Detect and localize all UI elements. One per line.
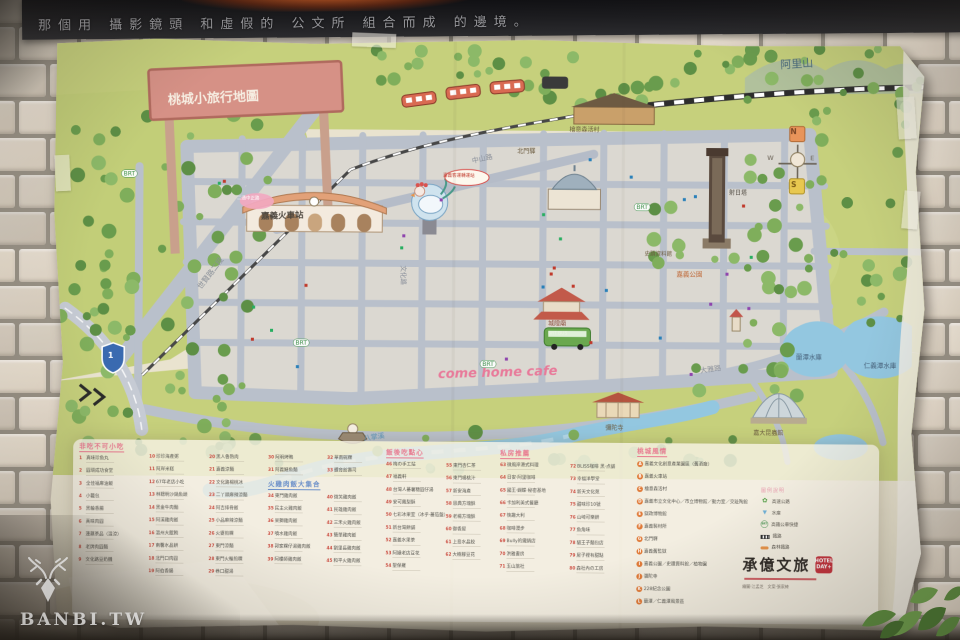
legend-item-number: 69 bbox=[500, 539, 507, 544]
tree-icon bbox=[816, 175, 826, 185]
legend-item-name: 東門火輪煎粿 bbox=[215, 556, 242, 561]
brick bbox=[0, 471, 15, 504]
brick bbox=[0, 249, 15, 282]
legend-item-address-line bbox=[392, 570, 420, 571]
legend-item-name: 呆獅雞肉飯 bbox=[275, 519, 298, 524]
tree-icon bbox=[896, 267, 908, 279]
tree-icon bbox=[80, 337, 95, 352]
legend-item-number: 66 bbox=[500, 501, 507, 506]
forest-rail-icon bbox=[761, 546, 769, 549]
tree-icon bbox=[83, 216, 94, 227]
tree-icon bbox=[212, 231, 225, 244]
legend-item-address-line bbox=[507, 495, 535, 496]
tree-icon bbox=[865, 49, 875, 59]
brick bbox=[0, 397, 15, 430]
legend-item-number: 50 bbox=[386, 513, 393, 518]
legend-item-name: 東門涼麵 bbox=[216, 544, 234, 549]
tree-icon bbox=[670, 78, 680, 88]
spot-number-dot bbox=[550, 272, 553, 275]
legend-item: K228紀念公園 bbox=[636, 586, 749, 593]
legend-item-address-line bbox=[216, 461, 244, 462]
legend-item-letter: A bbox=[637, 461, 643, 467]
map-paper: 非吃不可小吃1真味珍魚丸2圓環成功食堂3全佳福麻油飯4小籠包5黑輪香腸6真味肉圓… bbox=[48, 35, 928, 637]
brick bbox=[949, 397, 960, 430]
legend-item-number: 27 bbox=[209, 544, 216, 549]
legend-item-name: 簡單雞肉飯 bbox=[334, 533, 357, 538]
legend-item-name: 嘉義文化創意產業園區（舊酒廠） bbox=[645, 461, 713, 466]
tree-icon bbox=[647, 232, 662, 247]
legend-item-number: 44 bbox=[326, 546, 333, 551]
tree-icon bbox=[732, 55, 745, 68]
legend-item-number: 28 bbox=[208, 557, 215, 562]
legend-item-number: 7 bbox=[79, 532, 86, 537]
legend-item-name: 福義軒 bbox=[393, 474, 407, 479]
tree-icon bbox=[240, 152, 253, 165]
legend-item-address-line bbox=[155, 550, 183, 551]
legend-item-name: 噴水雞肉飯 bbox=[275, 531, 298, 536]
legend-item-address-line bbox=[156, 486, 184, 487]
tree-icon bbox=[107, 406, 119, 418]
legend-item: 4小籠包 bbox=[79, 494, 145, 501]
legend-item: 31阿義鱔魚麵 bbox=[268, 468, 334, 475]
legend-item-address-line bbox=[507, 520, 535, 521]
map-key-row: ▼水庫 bbox=[761, 509, 841, 517]
legend-item-number: 3 bbox=[79, 481, 86, 486]
legend-item-address-line bbox=[86, 475, 114, 476]
legend-column: 私房推薦63微風岸港式料理64日安·阿里咖啡65國王·蝴蝶·秘密基地66卡加利美… bbox=[499, 450, 566, 578]
legend-item: 71玉山旅社 bbox=[499, 565, 565, 572]
legend-item: 20黑人魯熟肉 bbox=[209, 455, 275, 462]
legend-item-address-line bbox=[156, 512, 184, 513]
legend-item-name: 蓮藕茶品（溫涼） bbox=[86, 532, 122, 537]
legend-item-address-line bbox=[577, 522, 605, 523]
legend-item: 73幸福洋學堂 bbox=[570, 477, 636, 484]
legend-item-address-line bbox=[577, 534, 605, 535]
legend-item-number: 68 bbox=[500, 527, 507, 532]
legend-item-address-line bbox=[392, 557, 420, 558]
legend-item: 25小品麻辣涼麵 bbox=[209, 519, 275, 526]
legend-item-name: 阿義鱔魚麵 bbox=[275, 468, 298, 473]
photo-of-map-on-brick-wall: 那個用 攝影鏡頭 和虛假的 公文所 組合而成 的邊境。 bbox=[0, 0, 960, 640]
legend-item-number: 73 bbox=[570, 477, 577, 482]
rail-icon bbox=[761, 535, 770, 539]
legend-item: 53阿娥老店豆花 bbox=[385, 551, 451, 558]
spot-number-dot bbox=[683, 198, 686, 201]
tape-piece bbox=[352, 32, 397, 48]
legend-item: 24阿吉排骨飯 bbox=[209, 506, 275, 513]
brick bbox=[0, 508, 46, 541]
tree-icon bbox=[774, 364, 788, 378]
legend-section-header: 火雞肉飯大集合 bbox=[268, 481, 321, 490]
map-key-row: 森林鐵路 bbox=[761, 543, 841, 550]
legend-item-name: 全佳福麻油飯 bbox=[86, 481, 113, 486]
tree-icon bbox=[567, 51, 579, 63]
tree-icon bbox=[774, 284, 784, 294]
legend-item: 69Bully的鐵鍋店 bbox=[500, 539, 566, 546]
legend-item-address-line bbox=[216, 525, 244, 526]
legend-item-address-line bbox=[334, 540, 362, 541]
tree-icon bbox=[857, 296, 866, 305]
tree-icon bbox=[801, 74, 813, 86]
legend-item-number: 67 bbox=[500, 514, 507, 519]
spot-number-dot bbox=[252, 306, 255, 309]
legend-item-letter: L bbox=[636, 598, 642, 604]
tree-icon bbox=[874, 45, 882, 53]
tree-icon bbox=[757, 174, 767, 184]
legend-item-number: 36 bbox=[268, 519, 275, 524]
tree-icon bbox=[797, 281, 812, 296]
legend-item: 6真味肉圓 bbox=[79, 520, 145, 527]
tree-icon bbox=[840, 89, 847, 96]
legend-item-name: 筷趣大利 bbox=[507, 513, 525, 518]
tree-icon bbox=[823, 107, 831, 115]
legend-item-letter: E bbox=[637, 511, 643, 517]
tree-icon bbox=[80, 406, 91, 417]
legend-item-number: 47 bbox=[386, 475, 393, 480]
brick bbox=[0, 101, 15, 134]
tree-icon bbox=[870, 274, 883, 287]
tree-icon bbox=[376, 75, 387, 86]
legend-item-name: 嘉義涼麵 bbox=[216, 467, 234, 472]
legend-item-name: 阿岸米糕 bbox=[156, 467, 174, 472]
legend-item-name: 黑金牛肉麵 bbox=[156, 505, 179, 510]
legend-item-name: 郭家粿仔湯雞肉飯 bbox=[275, 544, 311, 549]
legend-item: B嘉義火車站 bbox=[637, 473, 750, 480]
tree-icon bbox=[804, 254, 813, 263]
legend-item-number: 79 bbox=[569, 554, 576, 559]
spot-number-dot bbox=[542, 285, 545, 288]
legend-item: 30阿明烤鴨 bbox=[268, 455, 334, 462]
tree-icon bbox=[684, 62, 697, 75]
legend-item-address-line bbox=[507, 482, 535, 483]
spot-number-dot bbox=[296, 365, 299, 368]
legend-item: 16溫州大餛飩 bbox=[149, 531, 215, 538]
legend-item-number: 43 bbox=[327, 533, 334, 538]
tree-icon bbox=[377, 51, 387, 61]
legend-item-address-line bbox=[215, 563, 243, 564]
legend-item-letter: F bbox=[637, 523, 643, 529]
legend-item-address-line bbox=[333, 552, 361, 553]
legend-item-number: 15 bbox=[149, 518, 156, 523]
tree-icon bbox=[219, 292, 228, 301]
legend-item-name: 火婆煎粿 bbox=[216, 531, 234, 536]
legend-item-name: 彌陀寺 bbox=[644, 574, 658, 579]
tree-icon bbox=[664, 201, 677, 214]
legend-section-header: 私房推薦 bbox=[500, 450, 530, 459]
legend-item-name: 台灣人蕃薯糖圓仔湯 bbox=[393, 487, 434, 492]
legend-item-name: 文化路楊桃冰 bbox=[216, 480, 243, 485]
legend-item-number: 65 bbox=[500, 488, 507, 493]
brick bbox=[0, 286, 46, 319]
legend-item-number: 58 bbox=[446, 502, 453, 507]
legend-item-address-line bbox=[576, 560, 604, 561]
watermark-text: BANBI.TW bbox=[20, 610, 147, 630]
tree-icon bbox=[263, 176, 272, 185]
legend-item-address-line bbox=[216, 499, 244, 500]
legend-item-number: 6 bbox=[79, 520, 86, 525]
legend-item-name: 聖保羅 bbox=[392, 563, 406, 568]
brick bbox=[0, 360, 46, 393]
brt-icon: BRT bbox=[761, 520, 769, 528]
tree-icon bbox=[218, 344, 231, 357]
tree-icon bbox=[207, 253, 221, 267]
legend-item: 18北門口肉圓 bbox=[148, 556, 214, 563]
legend-item-name: 貓王子麵包店 bbox=[577, 540, 604, 545]
tree-icon bbox=[738, 364, 748, 374]
tree-icon bbox=[161, 317, 175, 331]
spot-number-dot bbox=[251, 338, 254, 341]
legend-item-name: 阿伯香腸 bbox=[155, 569, 173, 574]
brick bbox=[0, 619, 15, 640]
tree-icon bbox=[108, 321, 122, 335]
legend-item-name: 卡加利美式餐廳 bbox=[507, 501, 539, 506]
legend-item-address-line bbox=[86, 526, 114, 527]
legend-item-address-line bbox=[393, 481, 421, 482]
legend-item: E獄政博物館 bbox=[637, 511, 750, 518]
tree-icon bbox=[110, 126, 121, 137]
legend-item-name: 老楊方塊酥 bbox=[453, 514, 476, 519]
brand-slogan-line bbox=[744, 578, 816, 581]
legend-item-letter: K bbox=[636, 586, 642, 592]
brick bbox=[0, 64, 46, 97]
legend-item-name: 圓環成功食堂 bbox=[86, 468, 113, 473]
legend-item-number: 80 bbox=[569, 566, 576, 571]
tree-icon bbox=[853, 68, 864, 79]
legend-item-number: 2 bbox=[79, 469, 86, 474]
tree-icon bbox=[158, 245, 166, 253]
banner-text: 那個用 攝影鏡頭 和虛假的 公文所 組合而成 的邊境。 bbox=[38, 11, 534, 34]
legend-item-number: 8 bbox=[78, 545, 85, 550]
legend-item-name: 小籠包 bbox=[86, 494, 100, 499]
legend-item-address-line bbox=[156, 461, 184, 462]
tree-icon bbox=[722, 61, 729, 68]
legend-item-name: 真味珍魚丸 bbox=[86, 456, 109, 461]
legend-item: 45和平火雞肉飯 bbox=[326, 559, 392, 566]
plant-leaves bbox=[852, 566, 960, 640]
map-key-label: 水庫 bbox=[772, 509, 781, 516]
legend-item: 75甜味珍10號 bbox=[570, 503, 636, 510]
legend-item-number: 71 bbox=[499, 565, 506, 570]
brick bbox=[949, 323, 960, 356]
legend-item-address-line bbox=[393, 532, 421, 533]
tree-icon bbox=[404, 62, 412, 70]
legend-item: 65國王·蝴蝶·秘密基地 bbox=[500, 488, 566, 495]
legend-item-address-line bbox=[155, 563, 183, 564]
legend-item-name: 獄政博物館 bbox=[644, 511, 667, 516]
illustrated-map-poster: 非吃不可小吃1真味珍魚丸2圓環成功食堂3全佳福麻油飯4小籠包5黑輪香腸6真味肉圓… bbox=[48, 35, 928, 637]
legend-item-name: 阿溪雞肉飯 bbox=[156, 518, 179, 523]
legend-item-number: 32 bbox=[327, 456, 334, 461]
legend-item-address-line bbox=[215, 576, 243, 577]
legend-item-number: 1 bbox=[79, 456, 86, 461]
tree-icon bbox=[105, 249, 114, 258]
legend-item-name: 玉山旅社 bbox=[506, 564, 524, 569]
legend-item-name: 新天文化苑 bbox=[577, 490, 600, 495]
legend-column: 桃城風情A嘉義文化創意產業園區（舊酒廠）B嘉義火車站C檜意森活村D嘉義市立文化中… bbox=[636, 448, 750, 612]
tree-icon bbox=[186, 342, 199, 355]
legend-item-name: 嘉義公園／史蹟資料館／植物園 bbox=[644, 561, 707, 566]
legend-item-name: 檜意森活村 bbox=[644, 486, 667, 491]
legend-item: D嘉義市立文化中心／市立博物館／動力室／交趾陶館 bbox=[637, 498, 750, 505]
legend-item-name: 微笑雞肉飯 bbox=[334, 495, 357, 500]
tree-icon bbox=[648, 203, 661, 216]
tree-icon bbox=[208, 184, 222, 198]
spot-number-dot bbox=[725, 273, 728, 276]
brick bbox=[949, 101, 960, 134]
legend-item: F嘉義製材所 bbox=[637, 523, 750, 530]
legend-item-name: 新台灣餅舖 bbox=[393, 525, 416, 530]
legend-item-name: 嘉義舊監獄 bbox=[644, 549, 667, 554]
legend-item-name: 安可鳳梨酥 bbox=[393, 500, 416, 505]
legend-item: 17南馨水晶餅 bbox=[148, 544, 214, 551]
tree-icon bbox=[125, 279, 140, 294]
tree-icon bbox=[878, 293, 885, 300]
deer-logo-icon bbox=[20, 556, 80, 604]
tree-icon bbox=[492, 57, 505, 70]
brick bbox=[949, 471, 960, 504]
legend-item-letter: D bbox=[637, 498, 643, 504]
tree-icon bbox=[70, 168, 85, 183]
tree-icon bbox=[217, 402, 227, 412]
tree-icon bbox=[765, 72, 779, 86]
legend-item-name: 上島水晶餃 bbox=[453, 540, 476, 545]
tree-icon bbox=[75, 260, 86, 271]
tree-icon bbox=[456, 71, 464, 79]
map-key-row: ✿高速公路 bbox=[761, 497, 841, 505]
legend-column: 30阿明烤鴨31阿義鱔魚麵火雞肉飯大集合34東門雞肉飯35民主火雞肉飯36呆獅雞… bbox=[267, 455, 334, 570]
legend-section-header: 非吃不可小吃 bbox=[79, 443, 124, 452]
legend-item-address-line bbox=[216, 538, 244, 539]
legend-item-address-line bbox=[215, 550, 243, 551]
tree-icon bbox=[165, 383, 175, 393]
tree-icon bbox=[91, 155, 106, 170]
legend-item-address-line bbox=[156, 474, 184, 475]
legend-item-address-line bbox=[275, 513, 303, 514]
tree-icon bbox=[68, 283, 80, 295]
brick bbox=[0, 175, 15, 208]
legend-item-number: 78 bbox=[570, 541, 577, 546]
tree-icon bbox=[474, 70, 481, 77]
legend-item: 64日安·阿里咖啡 bbox=[500, 476, 566, 483]
tree-icon bbox=[520, 56, 532, 68]
tree-icon bbox=[728, 435, 737, 444]
tree-icon bbox=[238, 382, 245, 389]
tree-icon bbox=[53, 309, 67, 323]
legend-item-number: 10 bbox=[149, 455, 156, 460]
legend-item-number: 14 bbox=[149, 506, 156, 511]
legend-item: 10珍珍海產粥 bbox=[149, 455, 215, 462]
legend-item-name: 日安·阿里咖啡 bbox=[507, 475, 535, 480]
legend-item-name: 北門驛 bbox=[644, 536, 658, 541]
legend-item-address-line bbox=[86, 513, 114, 514]
tree-icon bbox=[197, 419, 212, 434]
tree-icon bbox=[796, 204, 803, 211]
legend-item-name: 東門雞肉飯 bbox=[275, 493, 298, 498]
tree-icon bbox=[123, 407, 134, 418]
spot-number-dot bbox=[742, 205, 745, 208]
tree-icon bbox=[225, 267, 239, 281]
legend-item-address-line bbox=[86, 539, 114, 540]
legend-item-number: 4 bbox=[79, 494, 86, 499]
legend-item-number: 21 bbox=[209, 468, 216, 473]
legend-item-name: 咖啡漫步 bbox=[507, 526, 525, 531]
leaf-icon bbox=[862, 587, 960, 639]
brick bbox=[0, 323, 15, 356]
tree-icon bbox=[181, 296, 194, 309]
legend-item-address-line bbox=[393, 519, 421, 520]
tree-icon bbox=[866, 318, 875, 327]
tree-icon bbox=[814, 43, 826, 55]
highway-1-shield bbox=[102, 343, 124, 373]
legend-item: 48台灣人蕃薯糖圓仔湯 bbox=[386, 488, 452, 495]
legend-item-number: 29 bbox=[208, 570, 215, 575]
tree-icon bbox=[485, 67, 493, 75]
legend-item: 36呆獅雞肉飯 bbox=[268, 519, 334, 526]
legend-item-address-line bbox=[506, 558, 534, 559]
legend-item-name: 67年老店小吃 bbox=[156, 480, 184, 485]
legend-item-letter: B bbox=[637, 473, 643, 479]
legend-item-number: 59 bbox=[446, 515, 453, 520]
legend-item-number: 49 bbox=[386, 500, 393, 505]
tree-icon bbox=[415, 45, 428, 58]
legend-item-number: 38 bbox=[268, 545, 275, 550]
tree-icon bbox=[676, 251, 684, 259]
tree-icon bbox=[175, 371, 185, 381]
tree-icon bbox=[411, 58, 423, 70]
legend-item: A嘉義文化創意產業園區（舊酒廠） bbox=[637, 461, 750, 468]
legend-item-number: 39 bbox=[267, 557, 274, 562]
legend-item-address-line bbox=[452, 559, 480, 560]
brick bbox=[949, 175, 960, 208]
tree-icon bbox=[631, 81, 645, 95]
legend-item-number: 35 bbox=[268, 506, 275, 511]
legend-item-address-line bbox=[453, 508, 481, 509]
map-key-row: BRT高鐵公車快捷 bbox=[761, 520, 841, 528]
legend-item-address-line bbox=[86, 488, 114, 489]
tree-icon bbox=[747, 228, 762, 243]
spot-number-dot bbox=[304, 284, 307, 287]
legend-item: 22文化路楊桃冰 bbox=[209, 480, 275, 487]
spot-number-dot bbox=[553, 266, 556, 269]
reservoir-icon: ▼ bbox=[761, 509, 769, 516]
tree-icon bbox=[93, 133, 105, 145]
spot-number-dot bbox=[559, 237, 562, 240]
legend-item-letter: C bbox=[637, 486, 643, 492]
legend-item-address-line bbox=[216, 474, 244, 475]
map-key-label: 森林鐵路 bbox=[772, 543, 790, 550]
legend-item-number: 20 bbox=[209, 455, 216, 460]
spot-number-dot bbox=[605, 289, 608, 292]
legend-item: 13林聰明沙鍋魚頭 bbox=[149, 493, 215, 500]
legend-item: 15阿溪雞肉飯 bbox=[149, 518, 215, 525]
legend-item: 54聖保羅 bbox=[385, 564, 451, 571]
legend-item-name: 珍珍海產粥 bbox=[156, 454, 179, 459]
legend-item-name: 阿明烤鴨 bbox=[275, 455, 293, 460]
legend-item: 8老牌肉圓麵 bbox=[78, 545, 144, 552]
legend-section-header: 飯後吃點心 bbox=[386, 449, 424, 458]
legend-item-name: 嘉義水果茶 bbox=[393, 538, 416, 543]
tree-icon bbox=[767, 218, 782, 233]
tree-icon bbox=[841, 197, 853, 209]
legend-item-name: 華南碗粿 bbox=[334, 455, 352, 460]
legend-item-number: 34 bbox=[268, 494, 275, 499]
legend-item-number: 62 bbox=[445, 553, 452, 558]
tree-icon bbox=[222, 418, 231, 427]
legend-item-number: 16 bbox=[149, 531, 156, 536]
legend-item-name: 阿樓師雞肉飯 bbox=[274, 557, 301, 562]
tree-icon bbox=[468, 425, 483, 440]
spot-number-dot bbox=[542, 213, 545, 216]
